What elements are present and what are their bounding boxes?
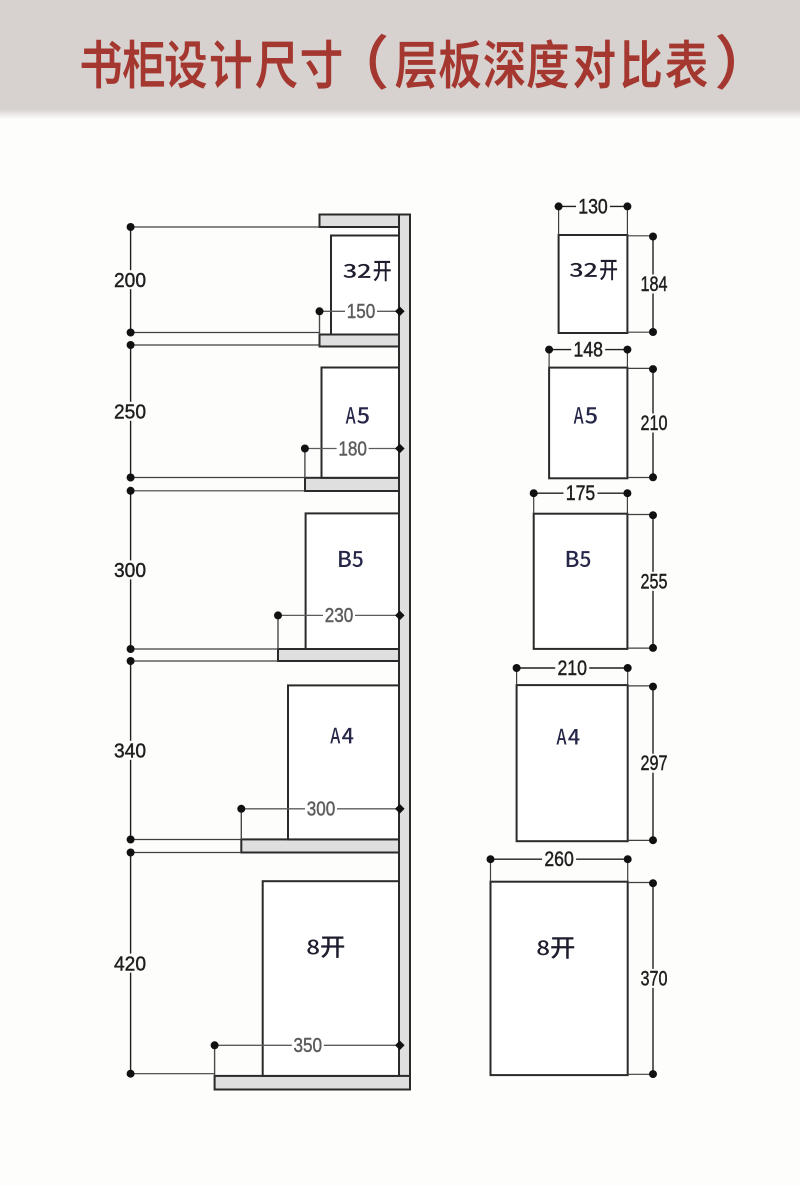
svg-text:370: 370: [641, 967, 668, 990]
svg-text:250: 250: [114, 400, 146, 423]
svg-text:260: 260: [544, 848, 574, 871]
svg-text:200: 200: [114, 269, 146, 292]
svg-text:184: 184: [641, 273, 668, 296]
svg-text:297: 297: [641, 752, 668, 775]
svg-text:230: 230: [325, 605, 354, 627]
svg-text:255: 255: [641, 570, 668, 593]
svg-text:148: 148: [573, 339, 603, 362]
svg-text:340: 340: [114, 740, 146, 763]
svg-text:300: 300: [307, 799, 336, 821]
svg-text:420: 420: [114, 952, 146, 975]
svg-text:130: 130: [578, 195, 608, 218]
svg-text:210: 210: [641, 412, 668, 435]
svg-text:350: 350: [294, 1035, 323, 1057]
svg-text:150: 150: [347, 301, 376, 323]
svg-text:175: 175: [566, 482, 596, 505]
svg-text:300: 300: [114, 559, 146, 582]
svg-text:180: 180: [338, 438, 367, 460]
svg-text:210: 210: [557, 657, 587, 680]
